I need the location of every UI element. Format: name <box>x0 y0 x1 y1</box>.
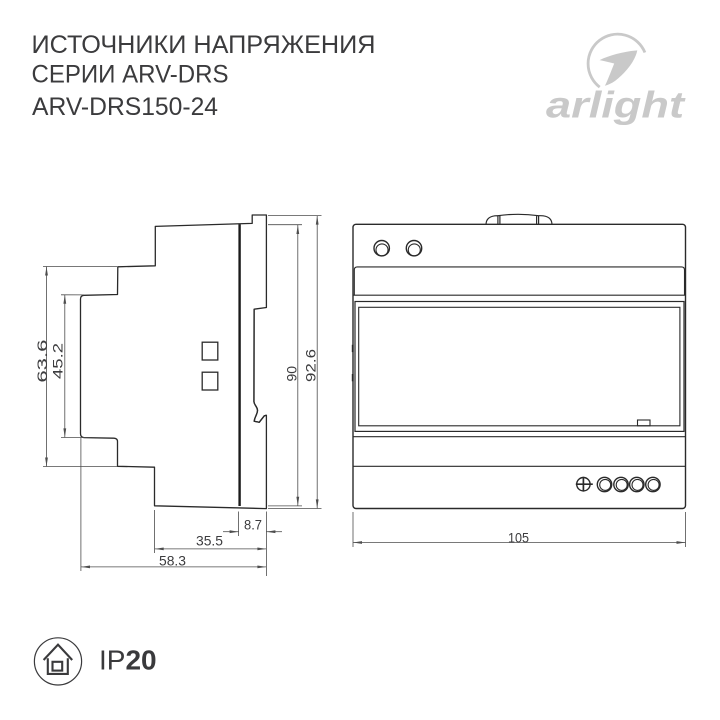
svg-text:105: 105 <box>508 530 529 546</box>
svg-text:ARV-DRS150-24: ARV-DRS150-24 <box>32 93 218 121</box>
svg-text:arlight: arlight <box>546 85 686 126</box>
svg-text:92.6: 92.6 <box>304 349 319 382</box>
svg-text:63.6: 63.6 <box>35 340 50 383</box>
svg-text:58.3: 58.3 <box>159 553 186 568</box>
svg-text:IP20: IP20 <box>99 645 157 676</box>
svg-text:ИСТОЧНИКИ НАПРЯЖЕНИЯ: ИСТОЧНИКИ НАПРЯЖЕНИЯ <box>32 31 376 59</box>
svg-text:35.5: 35.5 <box>196 534 223 549</box>
svg-text:90: 90 <box>285 366 300 382</box>
svg-text:СЕРИИ ARV-DRS: СЕРИИ ARV-DRS <box>32 60 229 88</box>
svg-text:45.2: 45.2 <box>51 343 66 379</box>
svg-text:8.7: 8.7 <box>244 517 262 532</box>
